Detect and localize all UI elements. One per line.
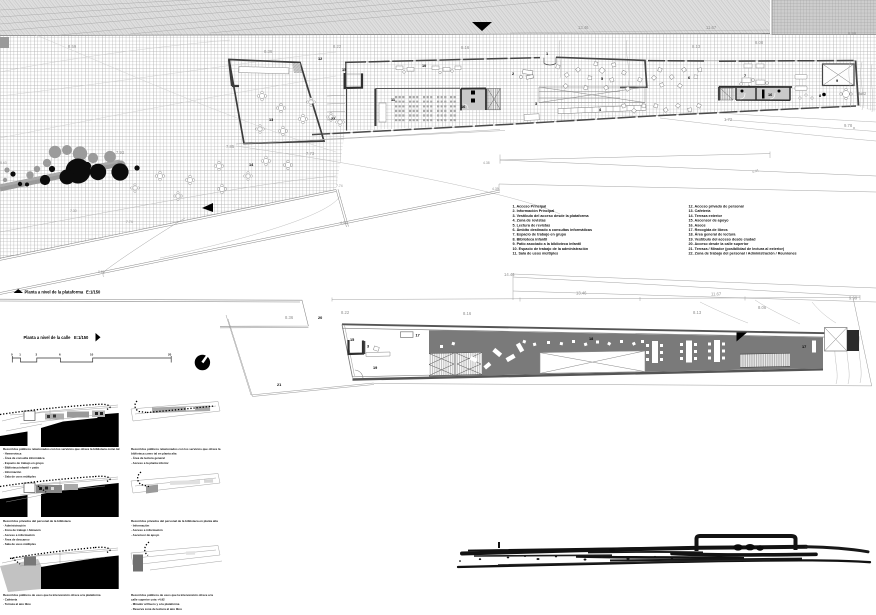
svg-text:13.46: 13.46 [576, 291, 587, 296]
svg-text:14.46: 14.46 [504, 272, 515, 277]
svg-text:- Área de lectura general: - Área de lectura general [131, 455, 165, 460]
svg-text:7.74: 7.74 [336, 184, 343, 188]
svg-text:20: 20 [318, 316, 322, 320]
svg-text:3. Vestíbulo del acceso desde: 3. Vestíbulo del acceso desde la platafo… [513, 214, 590, 218]
svg-text:17: 17 [802, 345, 806, 349]
svg-text:4. Zona de revistas: 4. Zona de revistas [513, 219, 546, 223]
svg-text:5. Lectura de revistas: 5. Lectura de revistas [513, 223, 551, 227]
svg-text:E:1/150: E:1/150 [74, 335, 89, 340]
svg-text:Planta a nivel de la calle: Planta a nivel de la calle [24, 335, 72, 340]
svg-text:Recorridos públicos relacionad: Recorridos públicos relacionados con los… [3, 447, 120, 451]
svg-text:E:1/150: E:1/150 [86, 290, 101, 295]
svg-text:Recorridos privados del person: Recorridos privados del personal de la b… [3, 519, 71, 523]
svg-text:- Información: - Información [131, 524, 150, 528]
svg-text:- Área de consulta informática: - Área de consulta informática [3, 455, 45, 460]
svg-text:19. Vestíbulo del acceso desde: 19. Vestíbulo del acceso desde ciudad [689, 237, 757, 241]
svg-text:11.67: 11.67 [706, 25, 717, 30]
svg-text:2: 2 [512, 72, 514, 76]
svg-text:8. Biblioteca infantil: 8. Biblioteca infantil [513, 237, 548, 241]
svg-text:15: 15 [350, 338, 354, 342]
svg-text:21. Terraza / Mirador (posibil: 21. Terraza / Mirador (posibilidad de le… [689, 247, 785, 251]
svg-text:8.16: 8.16 [463, 311, 472, 316]
svg-text:- Información: - Información [3, 470, 22, 474]
svg-text:0.66: 0.66 [98, 270, 105, 274]
svg-text:- Mirador al Duero y a la plat: - Mirador al Duero y a la plataforma [131, 602, 180, 606]
svg-text:7.73: 7.73 [306, 151, 315, 156]
svg-text:Recorridos públicos de usos qu: Recorridos públicos de usos que la inter… [131, 593, 213, 597]
svg-text:Recorridos públicos relacionad: Recorridos públicos relacionados con los… [131, 447, 221, 451]
svg-text:- Biblioteca infantil + patio: - Biblioteca infantil + patio [3, 465, 39, 469]
svg-text:- Administración: - Administración [3, 524, 26, 528]
svg-text:- Ascensor de apoyo: - Ascensor de apoyo [131, 533, 160, 537]
svg-text:8.22: 8.22 [341, 310, 350, 315]
svg-text:4.39: 4.39 [492, 187, 499, 191]
svg-text:3: 3 [367, 345, 369, 349]
svg-text:8.36: 8.36 [285, 315, 294, 320]
svg-text:7.74: 7.74 [126, 220, 133, 224]
svg-text:21: 21 [277, 383, 281, 387]
svg-text:Recorridos públicos de usos qu: Recorridos públicos de usos que la inter… [3, 593, 101, 597]
svg-text:Planta a nivel de la plataform: Planta a nivel de la plataforma [25, 290, 84, 295]
svg-text:- Área de descanso: - Área de descanso [3, 536, 30, 541]
svg-text:8.59: 8.59 [68, 44, 77, 49]
svg-text:14. Terraza exterior: 14. Terraza exterior [689, 214, 723, 218]
svg-text:8.36: 8.36 [264, 49, 273, 54]
svg-text:- Acceso a información: - Acceso a información [131, 528, 163, 532]
svg-text:13.46: 13.46 [578, 25, 589, 30]
svg-text:4.38: 4.38 [340, 221, 347, 225]
svg-text:Recorridos privados del person: Recorridos privados del personal de la b… [131, 519, 218, 523]
svg-text:22. Zona de trabajo del person: 22. Zona de trabajo del personal / Admin… [689, 252, 797, 256]
svg-text:- Terraza al aire libre: - Terraza al aire libre [3, 602, 31, 606]
svg-text:22: 22 [331, 117, 335, 121]
svg-text:8.08: 8.08 [755, 40, 764, 45]
svg-text:- Espacio de trabajo en grupo: - Espacio de trabajo en grupo [3, 461, 44, 465]
svg-text:- Acceso a la planta inferior: - Acceso a la planta inferior [131, 461, 170, 465]
svg-text:20: 20 [168, 353, 172, 357]
svg-text:- Hemeroteca: - Hemeroteca [3, 452, 22, 456]
svg-text:7. Espacio de trabajo en grupo: 7. Espacio de trabajo en grupo [513, 233, 567, 237]
svg-text:12: 12 [318, 57, 322, 61]
svg-text:3: 3 [535, 102, 537, 106]
svg-text:16: 16 [461, 105, 465, 109]
svg-text:- Acceso a información: - Acceso a información [3, 533, 35, 537]
svg-text:15: 15 [342, 68, 346, 72]
svg-text:1: 1 [546, 52, 548, 56]
svg-text:8: 8 [819, 94, 821, 98]
svg-text:7.30: 7.30 [70, 209, 77, 213]
svg-text:5: 5 [601, 77, 603, 81]
svg-text:8.16: 8.16 [461, 45, 470, 50]
svg-text:8.08: 8.08 [758, 305, 767, 310]
svg-text:7.85: 7.85 [226, 144, 235, 149]
svg-text:4.38: 4.38 [483, 161, 490, 165]
svg-text:9.99: 9.99 [848, 31, 857, 36]
svg-text:8.22: 8.22 [333, 44, 342, 49]
svg-text:12. Acceso privado de personal: 12. Acceso privado de personal [689, 205, 744, 209]
svg-text:6: 6 [688, 76, 690, 80]
svg-text:10. Espacio de trabajo de la a: 10. Espacio de trabajo de la administrac… [513, 247, 589, 251]
svg-text:9. Patio asociado a la bibliot: 9. Patio asociado a la biblioteca infant… [513, 242, 582, 246]
svg-text:11.67: 11.67 [711, 292, 722, 297]
svg-text:1. Acceso Principal: 1. Acceso Principal [513, 205, 547, 209]
svg-text:- Cafetería: - Cafetería [3, 598, 18, 602]
svg-text:10: 10 [422, 64, 426, 68]
svg-text:8.63: 8.63 [0, 161, 7, 165]
svg-text:2. Información Principal: 2. Información Principal [513, 209, 555, 213]
svg-text:16. Aseos: 16. Aseos [689, 223, 706, 227]
svg-text:20. Acceso desde la calle supe: 20. Acceso desde la calle superior [689, 242, 749, 246]
svg-text:11. Sala de usos múltiples: 11. Sala de usos múltiples [513, 252, 559, 256]
svg-text:calle superior cota +4.92: calle superior cota +4.92 [131, 598, 165, 602]
svg-text:13. Cafetería: 13. Cafetería [689, 209, 712, 213]
svg-text:13: 13 [269, 118, 273, 122]
svg-text:9.78: 9.78 [844, 123, 853, 128]
svg-text:9: 9 [836, 79, 838, 83]
svg-text:17. Recogida de libros: 17. Recogida de libros [689, 228, 728, 232]
svg-text:- Sala de usos múltiples: - Sala de usos múltiples [3, 475, 36, 479]
svg-text:6. Ámbito destinado a consulta: 6. Ámbito destinado a consultas informát… [513, 227, 593, 232]
svg-text:- Reserva zona de lectura al a: - Reserva zona de lectura al aire libre [131, 607, 182, 611]
svg-text:- Zona de trabajo / Almacén: - Zona de trabajo / Almacén [3, 528, 41, 532]
svg-text:18. Área general de lectura: 18. Área general de lectura [689, 232, 737, 237]
svg-text:8.13: 8.13 [693, 310, 702, 315]
svg-text:8.13: 8.13 [692, 44, 701, 49]
svg-text:18: 18 [589, 337, 593, 341]
svg-text:- Sala de usos múltiples: - Sala de usos múltiples [3, 542, 36, 546]
svg-text:7.92: 7.92 [116, 150, 125, 155]
svg-text:15. Ascensor de apoyo: 15. Ascensor de apoyo [689, 219, 730, 223]
svg-text:16: 16 [768, 93, 772, 97]
svg-text:biblioteca como tal en planta: biblioteca como tal en planta alta [131, 452, 177, 456]
svg-text:10: 10 [90, 353, 94, 357]
svg-text:11: 11 [391, 98, 395, 102]
svg-text:7: 7 [744, 74, 746, 78]
svg-text:19: 19 [373, 366, 377, 370]
svg-text:17: 17 [416, 334, 420, 338]
